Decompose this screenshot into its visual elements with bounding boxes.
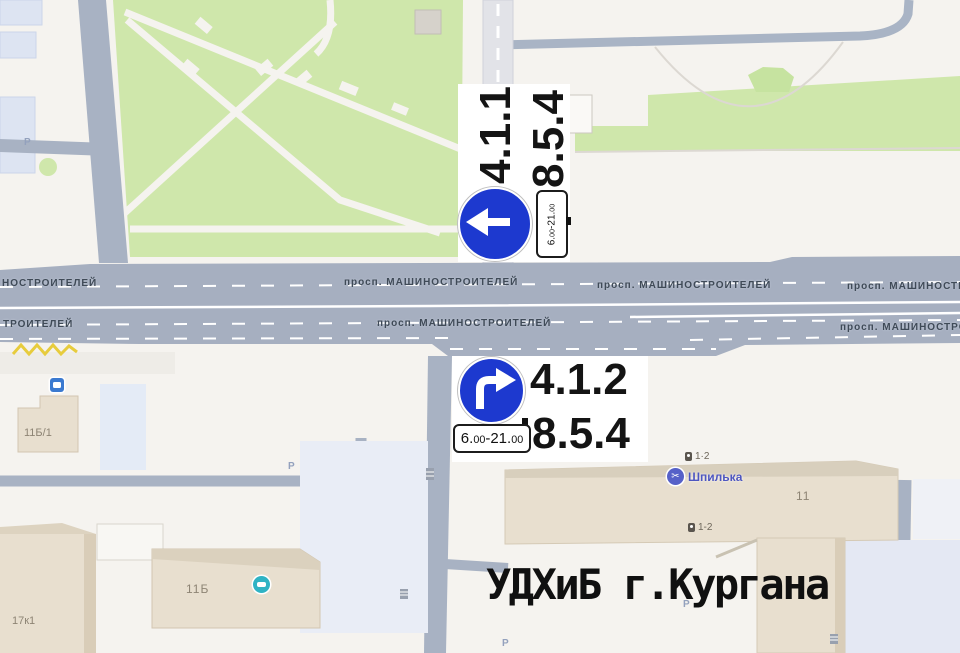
plate-bracket (566, 217, 571, 225)
park-structure (415, 10, 441, 34)
street-label: просп. МАШИНОСТРОИТЕЛЕЙ (377, 318, 551, 329)
scissors-icon[interactable]: ✂ (667, 468, 684, 485)
entrance-icon (685, 452, 692, 461)
poi-shpilka[interactable]: ✂ Шпилька (667, 468, 742, 485)
street-label: просп. МАШИНОСТРО (840, 322, 960, 333)
street-label: просп. МАШИНОСТРОИТЕЛЕЙ (597, 280, 771, 291)
entrance-text: 1·2 (695, 451, 709, 462)
street-label: ТРОИТЕЛЕЙ (3, 319, 73, 330)
sign-block-4-1-2: 4.1.2 8.5.4 6.00-21.00 (452, 356, 648, 462)
map-canvas[interactable]: НОСТРОИТЕЛЕЙ ТРОИТЕЛЕЙ просп. МАШИНОСТРО… (0, 0, 960, 653)
sign-code-4.1.2: 4.1.2 (530, 358, 628, 402)
building-label-11b: 11Б (186, 582, 209, 596)
turn-right-sign-icon (458, 357, 525, 424)
parking-label[interactable]: Р (24, 137, 31, 148)
entrance-icon (688, 523, 695, 532)
entrance-label: 1-2 (688, 522, 712, 533)
bus-stop-icon[interactable] (50, 378, 64, 392)
bus-glyph (53, 382, 61, 388)
street-label: НОСТРОИТЕЛЕЙ (2, 278, 97, 289)
street-label: просп. МАШИНОСТР (847, 281, 960, 292)
left-arrow-icon (460, 189, 526, 255)
entrance-label: 1·2 (685, 451, 709, 462)
car-service-icon[interactable] (253, 576, 270, 593)
entrance-text: 1-2 (698, 522, 712, 533)
time-plate-text: 6.00-21.00 (547, 203, 558, 245)
parking-label[interactable]: Р (288, 461, 295, 472)
watermark-udhib-kurgan: УДХиБ г.Кургана (486, 560, 828, 609)
car-glyph (257, 582, 266, 587)
sign-block-4-1-1: 4.1.1 8.5.4 6.00-21.00 (458, 84, 570, 262)
sign-code-8.5.4: 8.5.4 (532, 412, 630, 456)
building-label-11b1: 11Б/1 (24, 427, 52, 439)
poi-name[interactable]: Шпилька (688, 470, 742, 484)
time-plate: 6.00-21.00 (536, 190, 568, 258)
go-left-sign-icon (458, 187, 532, 261)
time-plate-text: 6.00-21.00 (461, 430, 523, 447)
right-turn-arrow-icon (460, 359, 519, 418)
street-label: просп. МАШИНОСТРОИТЕЛЕЙ (344, 277, 518, 288)
building-label-17k1: 17к1 (12, 615, 35, 627)
building-label-11: 11 (796, 489, 810, 503)
time-plate: 6.00-21.00 (453, 424, 531, 453)
parking-label[interactable]: Р (502, 638, 509, 649)
